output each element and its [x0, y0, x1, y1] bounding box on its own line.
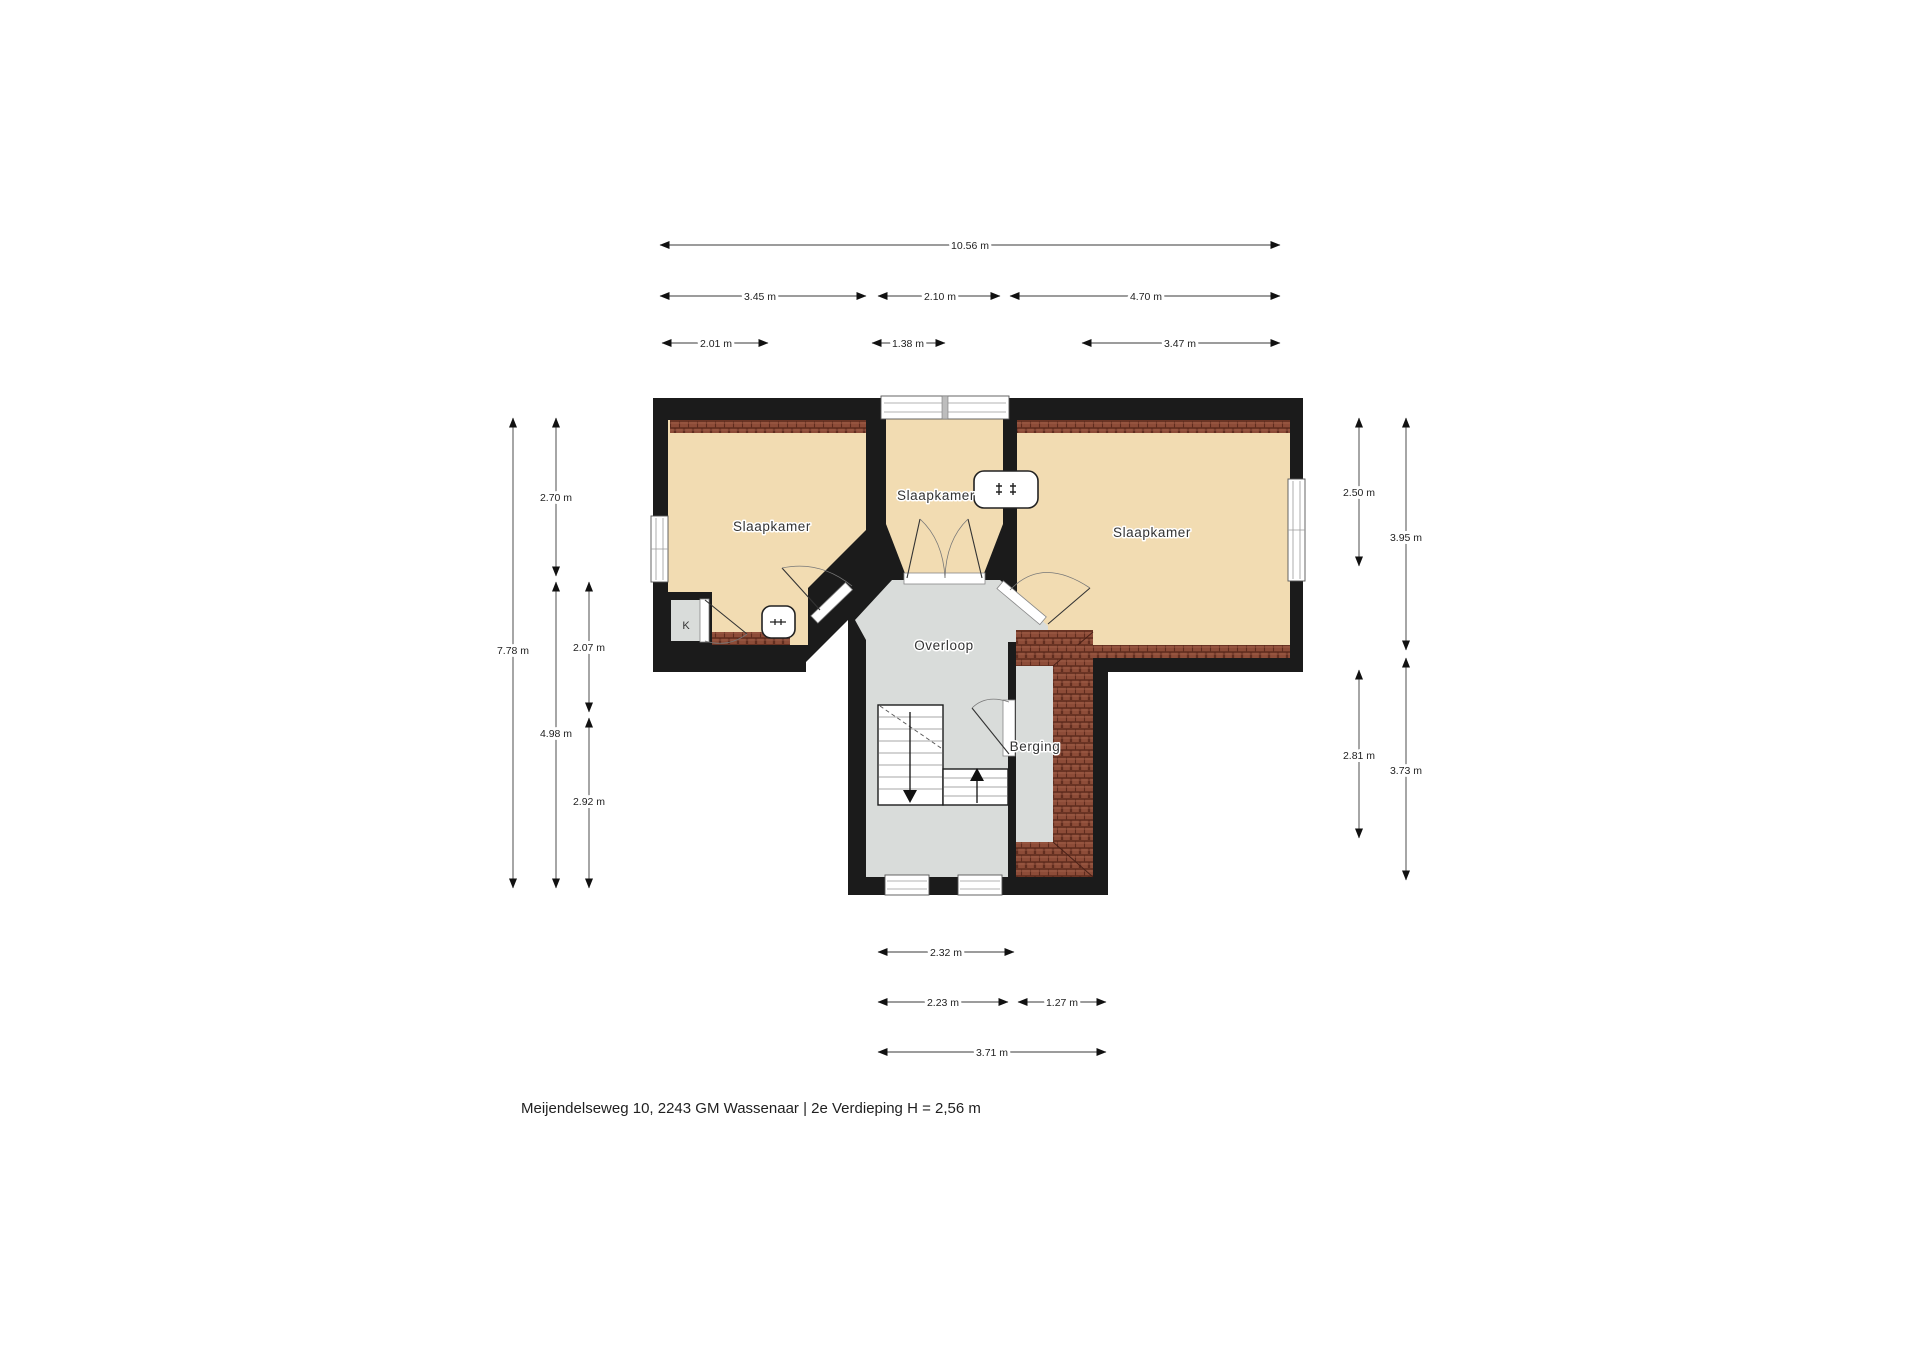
room-label-slaapkamer-right: Slaapkamer: [1113, 525, 1191, 540]
rooftile-strip-right-top: [1017, 420, 1290, 433]
svg-text:2.92 m: 2.92 m: [573, 796, 605, 808]
svg-text:10.56 m: 10.56 m: [951, 240, 989, 252]
room-floor-berging: [1016, 666, 1053, 842]
svg-text:2.23 m: 2.23 m: [927, 997, 959, 1009]
dimension-height-right-upper: 3.95 m: [1390, 418, 1422, 650]
room-label-slaapkamer-middle: Slaapkamer: [897, 488, 975, 503]
window-dormer-top: [881, 396, 1009, 419]
radiator-left-bedroom: [762, 606, 795, 638]
dimension-width-right: 4.70 m: [1010, 291, 1280, 303]
window-bottom-right: [958, 875, 1002, 895]
dimension-height-left-bottom: 2.92 m: [573, 718, 605, 888]
dimension-height-left-top: 2.70 m: [540, 418, 572, 576]
svg-text:3.73 m: 3.73 m: [1390, 765, 1422, 777]
svg-text:2.50 m: 2.50 m: [1343, 487, 1375, 499]
dimension-height-left-lower: 4.98 m: [540, 582, 572, 888]
dimension-ext-width-berging: 1.27 m: [1018, 997, 1106, 1009]
svg-text:3.45 m: 3.45 m: [744, 291, 776, 303]
svg-text:2.32 m: 2.32 m: [930, 947, 962, 959]
room-label-slaapkamer-left: Slaapkamer: [733, 519, 811, 534]
dimension-total-width: 10.56 m: [660, 240, 1280, 252]
window-bottom-left: [885, 875, 929, 895]
svg-text:1.38 m: 1.38 m: [892, 338, 924, 350]
closet-door: [700, 599, 709, 642]
caption: Meijendelseweg 10, 2243 GM Wassenaar | 2…: [521, 1100, 981, 1117]
svg-text:4.98 m: 4.98 m: [540, 728, 572, 740]
window-right: [1288, 479, 1305, 581]
svg-text:2.10 m: 2.10 m: [924, 291, 956, 303]
svg-text:3.95 m: 3.95 m: [1390, 532, 1422, 544]
dimension-inner-width-right: 3.47 m: [1082, 338, 1280, 350]
building: Slaapkamer Slaapkamer Slaapkamer Overloo…: [651, 396, 1305, 895]
svg-text:2.07 m: 2.07 m: [573, 642, 605, 654]
dimension-inner-width-left: 2.01 m: [662, 338, 768, 350]
dimension-width-left: 3.45 m: [660, 291, 866, 303]
floorplan-page: Slaapkamer Slaapkamer Slaapkamer Overloo…: [0, 0, 1920, 1358]
dimension-ext-width-top: 2.32 m: [878, 947, 1014, 959]
window-left: [651, 516, 668, 582]
svg-text:2.01 m: 2.01 m: [700, 338, 732, 350]
svg-text:4.70 m: 4.70 m: [1130, 291, 1162, 303]
svg-text:3.71 m: 3.71 m: [976, 1047, 1008, 1059]
dimension-height-left-mid: 2.07 m: [573, 582, 605, 712]
dimension-height-right-bottom: 3.73 m: [1390, 658, 1422, 880]
dimension-width-middle: 2.10 m: [878, 291, 1000, 303]
dimension-inner-width-middle: 1.38 m: [872, 338, 945, 350]
floorplan-svg: Slaapkamer Slaapkamer Slaapkamer Overloo…: [0, 0, 1920, 1358]
room-label-kast: K: [682, 620, 690, 632]
dimension-height-right-top: 2.50 m: [1343, 418, 1375, 566]
dimension-total-height-left: 7.78 m: [497, 418, 529, 888]
svg-text:1.27 m: 1.27 m: [1046, 997, 1078, 1009]
dimension-ext-width-total: 3.71 m: [878, 1047, 1106, 1059]
room-label-berging: Berging: [1010, 739, 1061, 754]
rooftile-strip-left-top: [670, 420, 866, 433]
rooftile-strip-right-bottom: [1040, 645, 1290, 658]
svg-text:2.70 m: 2.70 m: [540, 492, 572, 504]
svg-text:2.81 m: 2.81 m: [1343, 750, 1375, 762]
radiator-middle-right-wall: [974, 471, 1038, 508]
dimension-height-right-lower: 2.81 m: [1343, 670, 1375, 838]
svg-text:7.78 m: 7.78 m: [497, 645, 529, 657]
svg-text:3.47 m: 3.47 m: [1164, 338, 1196, 350]
room-label-overloop: Overloop: [914, 638, 974, 653]
dimension-ext-width-stair: 2.23 m: [878, 997, 1008, 1009]
